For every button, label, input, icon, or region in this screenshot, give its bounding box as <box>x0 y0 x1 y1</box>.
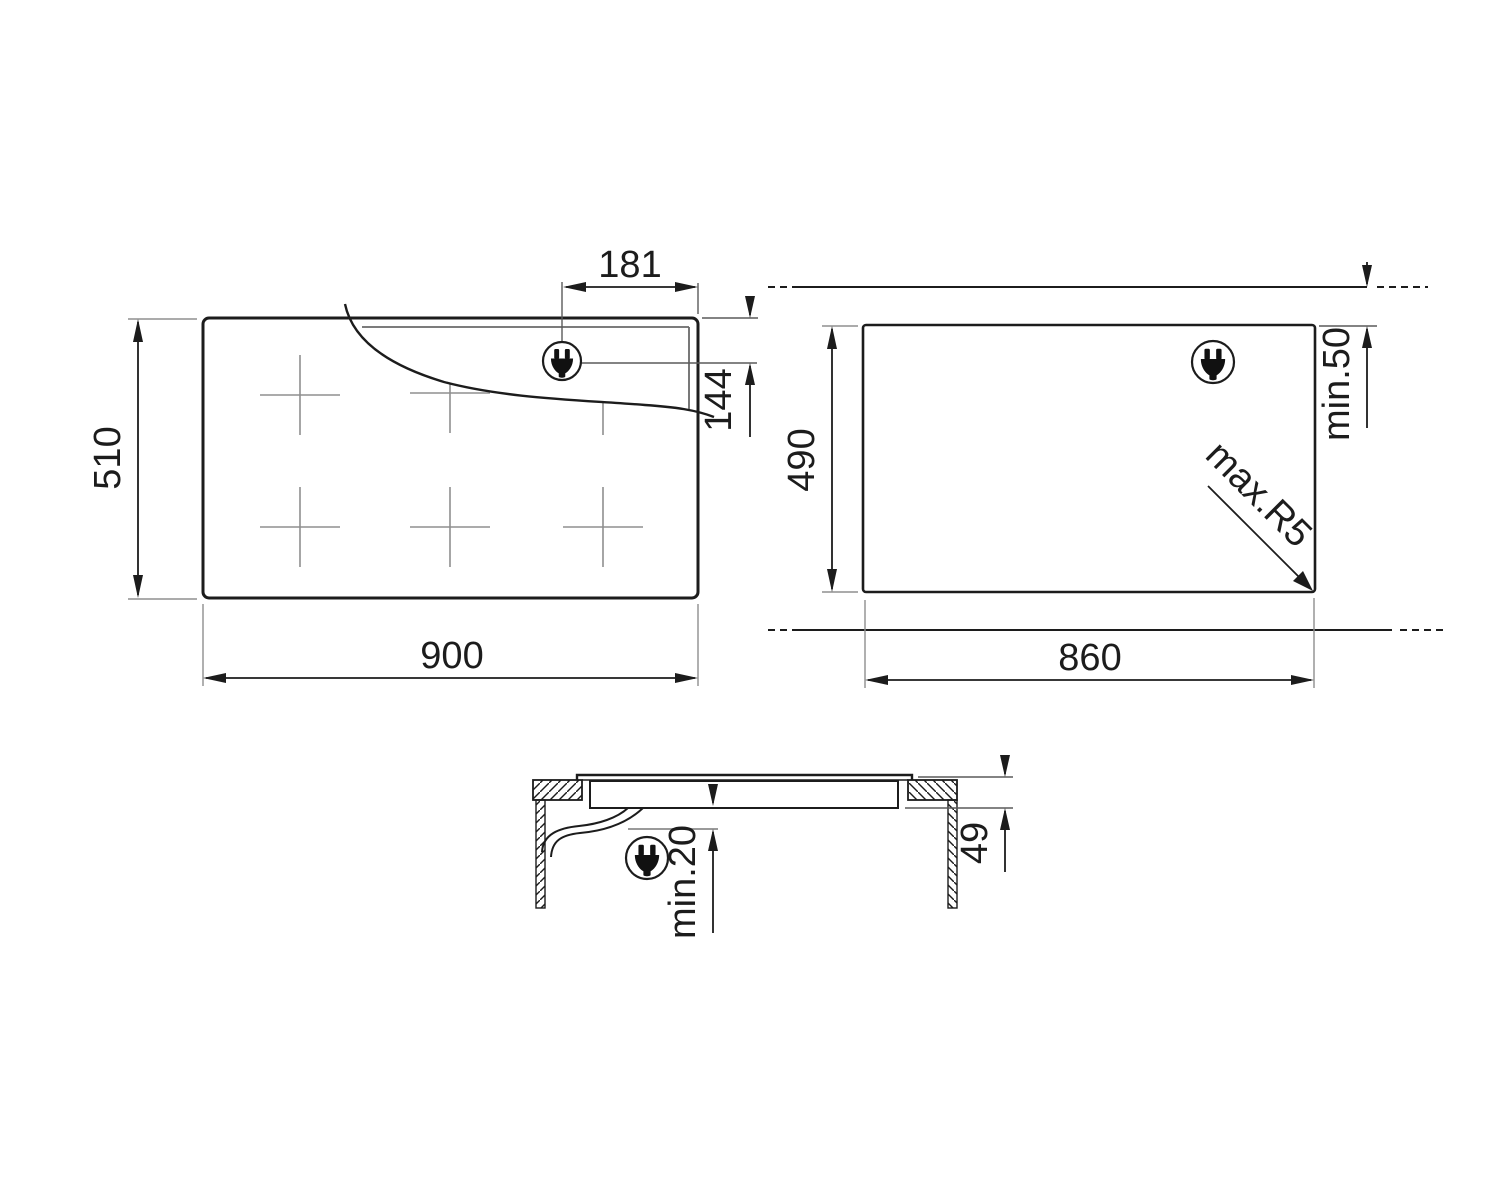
dim-49-label: 49 <box>954 822 996 864</box>
dim-490-label: 490 <box>781 428 823 491</box>
dim-min50-label: min.50 <box>1316 327 1358 441</box>
dim-900-label: 900 <box>420 635 483 677</box>
dim-min20-label: min.20 <box>662 825 704 939</box>
plug-position <box>1192 341 1234 383</box>
dim-181-label: 181 <box>598 244 661 286</box>
dim-510-label: 510 <box>87 426 129 489</box>
worktop-block-hatch <box>533 780 582 800</box>
worktop-block-hatch <box>908 780 957 800</box>
hob-section <box>577 775 912 808</box>
dim-860-label: 860 <box>1058 637 1121 679</box>
cabinet-side-panel <box>536 800 545 908</box>
sheet-background <box>0 0 1500 1200</box>
hob-body <box>590 781 898 808</box>
hob-installation-diagram: 181 144 510 900 <box>0 0 1500 1200</box>
dim-144-label: 144 <box>698 368 740 431</box>
technical-drawing-sheet: 181 144 510 900 <box>0 0 1500 1200</box>
